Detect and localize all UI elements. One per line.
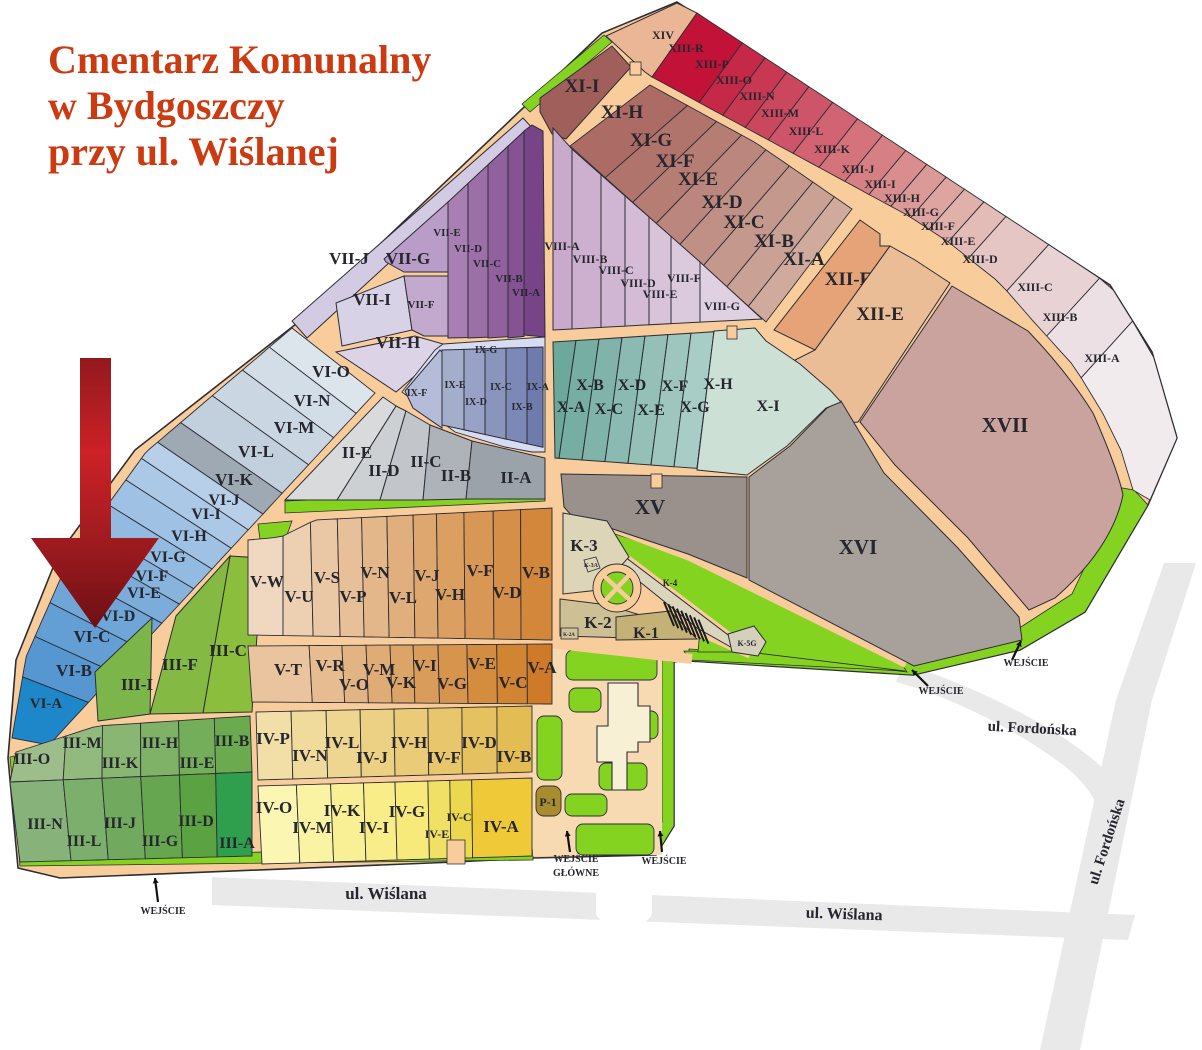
svg-text:VIII-E: VIII-E (643, 287, 678, 301)
svg-text:WEJŚCIE: WEJŚCIE (641, 855, 686, 867)
svg-text:III-L: III-L (67, 833, 102, 850)
svg-text:XIII-P: XIII-P (695, 57, 729, 71)
svg-text:IV-B: IV-B (497, 747, 532, 766)
svg-text:V-W: V-W (250, 572, 284, 591)
svg-text:X-B: X-B (576, 377, 604, 394)
svg-text:XVII: XVII (982, 413, 1029, 437)
svg-text:IX-B: IX-B (511, 402, 532, 413)
svg-text:IX-G: IX-G (475, 345, 497, 356)
svg-text:V-U: V-U (285, 587, 314, 606)
svg-text:VI-A: VI-A (30, 696, 63, 712)
svg-text:III-F: III-F (162, 655, 198, 674)
svg-text:IV-L: IV-L (325, 733, 360, 752)
svg-text:IV-K: IV-K (324, 801, 361, 820)
svg-text:III-H: III-H (142, 735, 179, 752)
svg-text:VI-I: VI-I (191, 506, 220, 523)
svg-text:IV-E: IV-E (425, 827, 449, 841)
svg-text:XII-E: XII-E (856, 304, 904, 325)
svg-text:VIII-A: VIII-A (544, 239, 580, 253)
svg-text:III-A: III-A (219, 835, 255, 852)
svg-text:WEJŚCIE: WEJŚCIE (553, 853, 598, 865)
svg-text:IV-P: IV-P (256, 729, 290, 748)
svg-text:VI-L: VI-L (238, 442, 274, 461)
svg-text:K-5G: K-5G (737, 639, 756, 648)
svg-text:IX-C: IX-C (490, 382, 512, 393)
svg-text:XIII-N: XIII-N (739, 89, 775, 103)
svg-text:IX-D: IX-D (465, 397, 487, 408)
svg-text:V-T: V-T (274, 660, 303, 679)
svg-text:IV-H: IV-H (391, 733, 428, 752)
svg-text:XIII-O: XIII-O (716, 73, 752, 87)
svg-text:V-R: V-R (316, 656, 346, 675)
svg-text:IV-I: IV-I (359, 818, 389, 837)
svg-text:WEJŚCIE: WEJŚCIE (140, 905, 185, 917)
svg-text:VI-M: VI-M (274, 418, 315, 437)
svg-text:VII-I: VII-I (353, 290, 391, 309)
svg-text:XIII-H: XIII-H (884, 191, 921, 205)
svg-text:V-B: V-B (522, 563, 550, 582)
svg-text:XI-A: XI-A (783, 249, 824, 270)
svg-text:II-B: II-B (441, 466, 471, 485)
svg-text:III-E: III-E (180, 755, 215, 772)
svg-text:V-F: V-F (466, 561, 493, 580)
svg-text:XI-D: XI-D (701, 192, 742, 213)
svg-text:K-2: K-2 (584, 613, 611, 632)
svg-text:V-P: V-P (339, 587, 366, 606)
svg-text:K-4: K-4 (663, 578, 678, 588)
svg-text:XIII-D: XIII-D (962, 252, 998, 266)
svg-text:XV: XV (635, 495, 665, 519)
svg-text:XVI: XVI (839, 535, 878, 559)
svg-text:VI-C: VI-C (74, 627, 111, 646)
svg-text:II-A: II-A (500, 468, 532, 487)
svg-text:IV-J: IV-J (356, 748, 388, 767)
svg-text:VI-N: VI-N (294, 391, 332, 410)
svg-text:VI-G: VI-G (150, 549, 186, 566)
svg-text:VII-C: VII-C (473, 258, 501, 270)
svg-text:VIII-G: VIII-G (704, 299, 740, 313)
svg-text:II-D: II-D (368, 461, 399, 480)
svg-text:XIII-A: XIII-A (1084, 351, 1120, 365)
svg-text:XI-C: XI-C (723, 212, 764, 233)
svg-text:V-A: V-A (528, 658, 558, 677)
svg-text:VII-G: VII-G (386, 249, 430, 268)
svg-text:XIII-M: XIII-M (761, 106, 799, 120)
svg-text:IV-D: IV-D (461, 733, 497, 752)
svg-text:VI-H: VI-H (171, 528, 207, 545)
svg-text:X-H: X-H (703, 376, 733, 393)
svg-text:XI-I: XI-I (565, 76, 600, 97)
svg-text:K-3A: K-3A (584, 563, 599, 569)
svg-text:V-E: V-E (468, 654, 496, 673)
svg-text:II-C: II-C (410, 452, 441, 471)
svg-text:XI-H: XI-H (601, 102, 643, 123)
svg-text:X-G: X-G (680, 399, 710, 416)
svg-text:Cmentarz Komunalny: Cmentarz Komunalny (48, 37, 431, 82)
svg-text:IV-C: IV-C (446, 810, 471, 824)
svg-text:VII-J: VII-J (329, 249, 369, 268)
svg-text:XIII-G: XIII-G (903, 205, 939, 219)
svg-text:X-F: X-F (662, 378, 689, 395)
svg-text:III-C: III-C (209, 641, 247, 660)
svg-text:V-K: V-K (386, 673, 417, 692)
svg-text:IV-F: IV-F (427, 748, 461, 767)
svg-text:VI-O: VI-O (312, 362, 350, 381)
svg-text:X-I: X-I (756, 398, 779, 415)
svg-text:K-2A: K-2A (563, 633, 575, 638)
svg-text:V-G: V-G (437, 674, 467, 693)
svg-text:II-E: II-E (342, 443, 372, 462)
svg-text:X-A: X-A (557, 399, 586, 416)
svg-text:VII-H: VII-H (376, 333, 420, 352)
svg-text:WEJŚCIE: WEJŚCIE (1003, 657, 1048, 669)
svg-text:X-E: X-E (637, 402, 665, 419)
svg-text:ul. Wiślana: ul. Wiślana (345, 884, 427, 903)
svg-text:XIII-K: XIII-K (814, 142, 851, 156)
svg-text:VI-B: VI-B (56, 661, 92, 680)
svg-text:IX-F: IX-F (407, 388, 428, 399)
svg-text:V-J: V-J (414, 566, 440, 585)
svg-text:X-D: X-D (618, 377, 646, 394)
svg-text:III-N: III-N (27, 816, 63, 833)
svg-text:III-D: III-D (178, 813, 214, 830)
svg-text:IV-G: IV-G (389, 802, 426, 821)
svg-text:VI-K: VI-K (215, 470, 254, 489)
svg-text:XIII-I: XIII-I (864, 177, 896, 191)
svg-text:III-J: III-J (104, 815, 136, 832)
svg-text:III-I: III-I (121, 675, 154, 694)
svg-text:XIII-R: XIII-R (668, 41, 704, 55)
svg-text:V-N: V-N (361, 563, 391, 582)
svg-text:XIII-F: XIII-F (921, 219, 955, 233)
svg-text:ul. Wiślana: ul. Wiślana (805, 905, 882, 925)
svg-text:IV-O: IV-O (256, 798, 293, 817)
svg-text:IX-A: IX-A (527, 382, 549, 393)
svg-text:III-B: III-B (215, 733, 250, 750)
svg-text:VIII-C: VIII-C (598, 263, 633, 277)
svg-text:V-D: V-D (493, 583, 522, 602)
svg-text:XIII-B: XIII-B (1043, 310, 1078, 324)
svg-text:XI-E: XI-E (678, 169, 718, 190)
svg-text:V-I: V-I (413, 656, 437, 675)
svg-text:VI-E: VI-E (127, 585, 161, 602)
svg-text:V-C: V-C (499, 673, 528, 692)
svg-text:VIII-F: VIII-F (667, 271, 701, 285)
svg-text:III-G: III-G (142, 833, 179, 850)
svg-text:w Bydgoszczy: w Bydgoszczy (48, 83, 285, 128)
svg-text:XI-G: XI-G (630, 130, 672, 151)
svg-text:VII-F: VII-F (408, 299, 435, 311)
svg-text:III-O: III-O (14, 751, 50, 768)
svg-text:XIII-L: XIII-L (789, 124, 824, 138)
svg-text:V-H: V-H (435, 585, 465, 604)
svg-text:III-M: III-M (62, 735, 101, 752)
svg-text:K-1: K-1 (633, 625, 659, 642)
svg-text:V-S: V-S (314, 568, 340, 587)
svg-text:VII-B: VII-B (495, 273, 523, 285)
svg-text:IV-N: IV-N (292, 746, 328, 765)
svg-text:P-1: P-1 (539, 795, 556, 809)
svg-text:XIII-C: XIII-C (1017, 280, 1052, 294)
svg-text:VII-D: VII-D (454, 243, 482, 255)
svg-text:V-L: V-L (389, 588, 417, 607)
svg-text:GŁÓWNE: GŁÓWNE (553, 867, 599, 879)
svg-text:WEJŚCIE: WEJŚCIE (918, 685, 963, 697)
svg-text:IX-E: IX-E (444, 380, 465, 391)
svg-text:XIII-J: XIII-J (842, 162, 875, 176)
svg-text:III-K: III-K (102, 755, 139, 772)
svg-text:IV-A: IV-A (483, 817, 519, 836)
svg-text:XIV: XIV (652, 28, 674, 42)
svg-text:przy ul. Wiślanej: przy ul. Wiślanej (48, 129, 339, 174)
svg-text:VII-E: VII-E (433, 227, 461, 239)
svg-text:VI-F: VI-F (136, 568, 169, 585)
svg-text:IV-M: IV-M (292, 818, 331, 837)
svg-text:X-C: X-C (595, 401, 623, 418)
svg-text:K-3: K-3 (570, 536, 597, 555)
svg-text:XIII-E: XIII-E (941, 234, 976, 248)
svg-text:VII-A: VII-A (512, 287, 540, 299)
